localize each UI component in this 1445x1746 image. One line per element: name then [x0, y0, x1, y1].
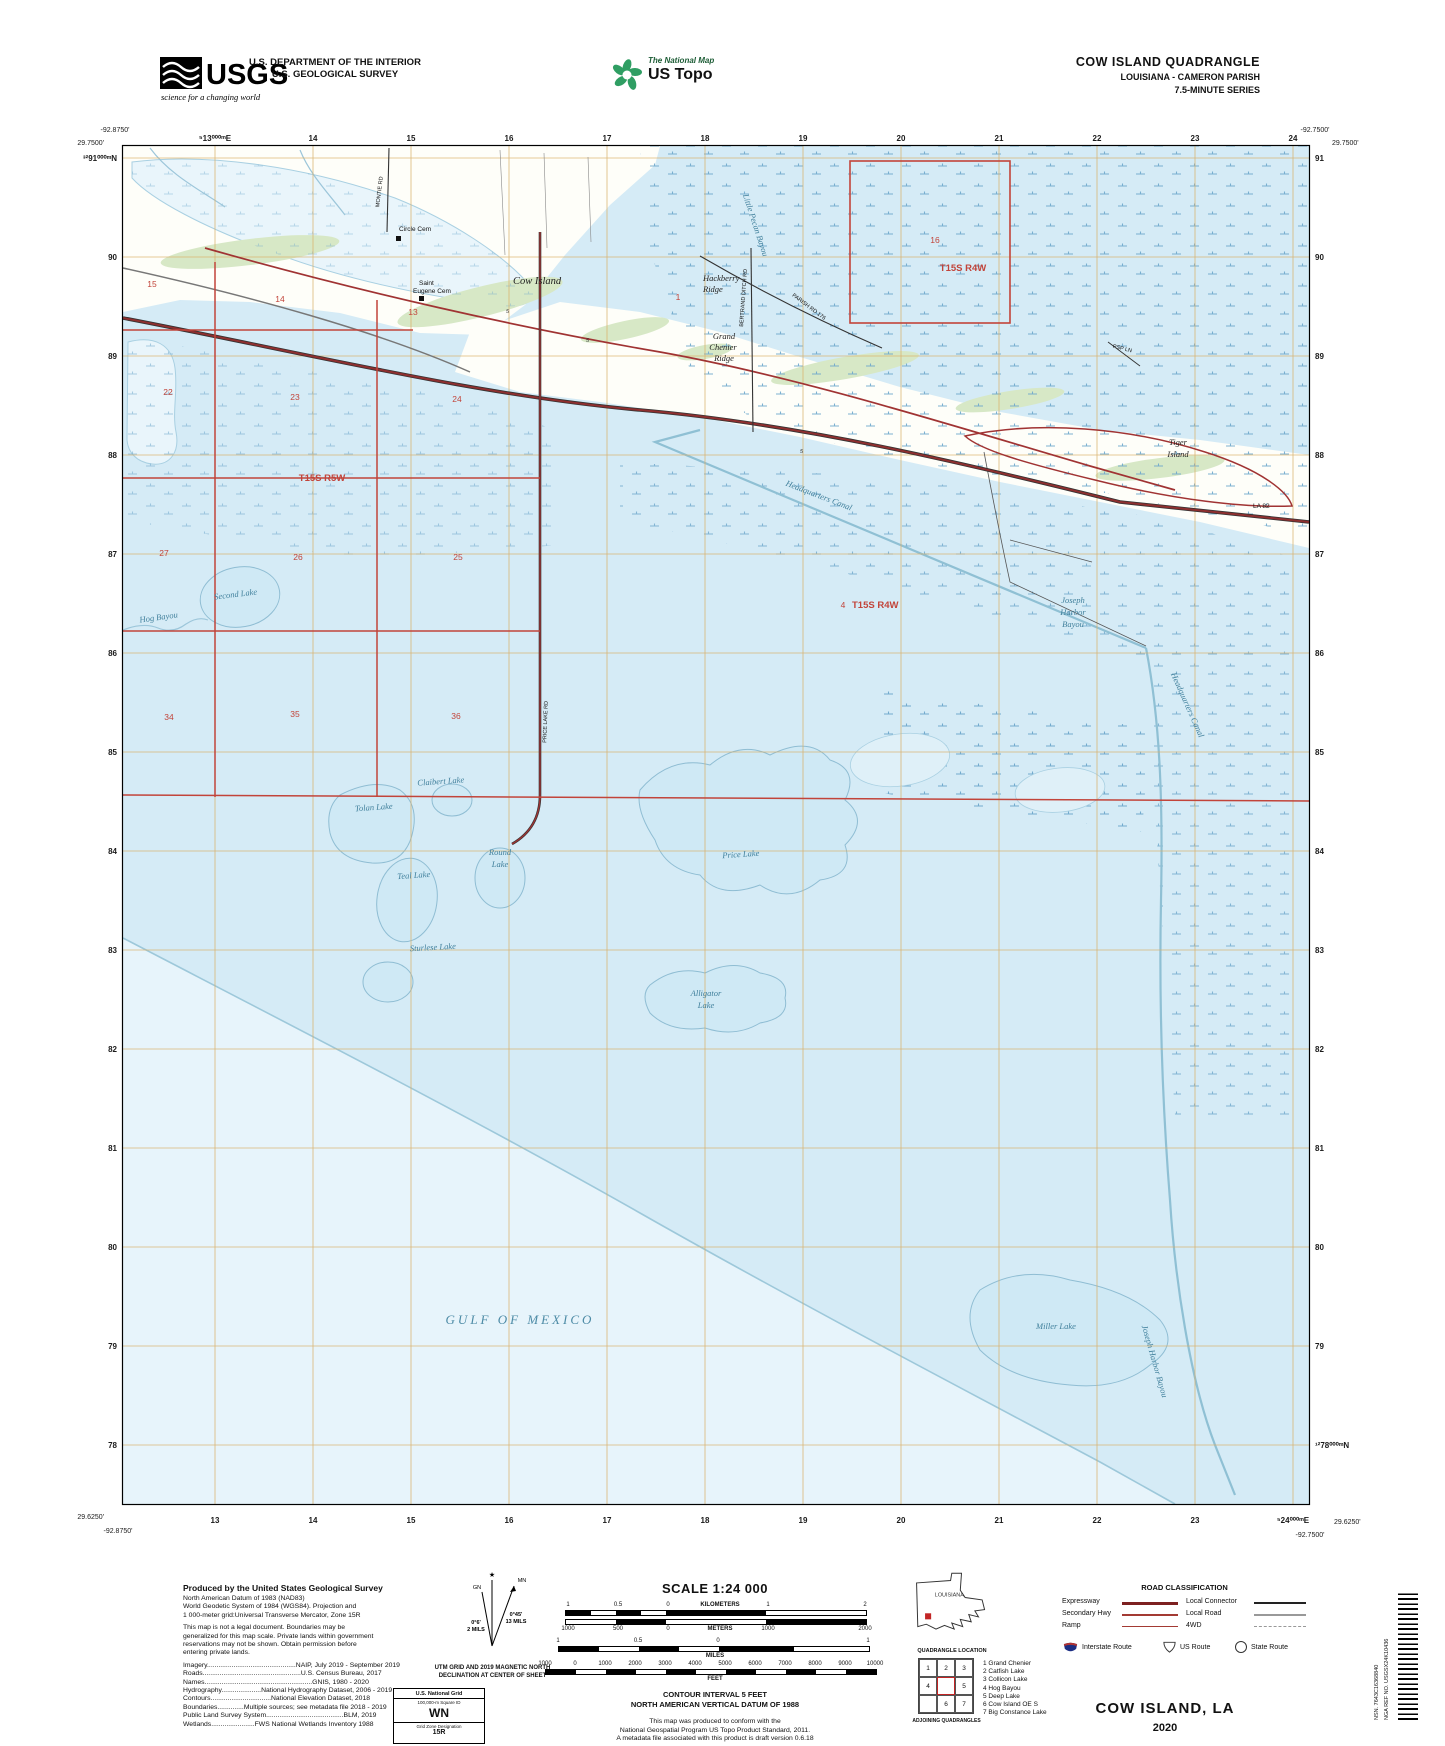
grid-label-left: 89: [108, 352, 117, 361]
road-classification: ROAD CLASSIFICATION Expressway Local Con…: [1062, 1583, 1307, 1656]
gn-angle: 0°6': [471, 1620, 481, 1626]
grid-label-bottom: 18: [701, 1516, 710, 1525]
grid-label-left: 85: [108, 748, 117, 757]
scale-block: SCALE 1:24 000 1 0.5 0 KILOMETERS 1 2 10…: [545, 1581, 885, 1744]
corner-coord: -92.8750': [101, 127, 130, 134]
scale-tick: 0: [666, 1602, 669, 1608]
ramp-line: [1122, 1626, 1178, 1627]
map-year: 2020: [1020, 1722, 1310, 1734]
scale-tick: 1000: [538, 1661, 551, 1667]
section-number: 36: [451, 711, 461, 721]
grid-label-left: 87: [108, 550, 117, 559]
bayou-label: Harbor: [1059, 607, 1086, 617]
louisiana-outline: LOUISIANA: [913, 1572, 993, 1640]
mn-angle: 0°45': [510, 1612, 523, 1618]
section-number: 34: [164, 712, 174, 722]
adjoining-cell-this-quad: [937, 1677, 955, 1695]
adjoining-cell: 1: [919, 1659, 937, 1677]
standard-line: National Geospatial Program US Topo Prod…: [545, 1727, 885, 1736]
grid-label-top: ⁵13⁰⁰⁰ᵐE: [199, 134, 232, 143]
scale-tick: 1000: [761, 1626, 774, 1632]
grid-label-top: 17: [603, 134, 612, 143]
scale-tick: 0: [573, 1661, 576, 1667]
nsn-number: NSN. 7643C16368840: [1374, 1592, 1380, 1720]
mi-scalebar: [558, 1646, 870, 1652]
corner-coord: -92.7500': [1301, 127, 1330, 134]
grid-label-top: 20: [897, 134, 906, 143]
adjoining-cell: 7: [955, 1695, 973, 1713]
grid-label-top: 15: [407, 134, 416, 143]
usng-gzd-label: Grid Zone Designation: [394, 1722, 484, 1729]
section-number: 14: [275, 294, 285, 304]
grid-label-left: 78: [108, 1441, 117, 1450]
ridge-label: Ridge: [713, 353, 734, 363]
grid-label-top: 14: [309, 134, 318, 143]
ridge-label: Ridge: [702, 284, 723, 294]
grid-label-right: 84: [1315, 847, 1324, 856]
township-label: T15S R4W: [852, 600, 898, 611]
grid-label-left: 84: [108, 847, 117, 856]
scale-tick: 9000: [838, 1661, 851, 1667]
cemetery-label: Saint: [419, 280, 434, 287]
gulf-of-mexico-label: GULF OF MEXICO: [446, 1312, 595, 1327]
grid-label-right: 86: [1315, 649, 1324, 658]
standard-line: A metadata file associated with this pro…: [545, 1735, 885, 1744]
scale-tick: 7000: [778, 1661, 791, 1667]
grid-label-right: 87: [1315, 550, 1324, 559]
scale-tick: 2000: [858, 1626, 871, 1632]
road-class-title: ROAD CLASSIFICATION: [1062, 1583, 1307, 1592]
grid-label-top: 24: [1289, 134, 1298, 143]
bayou-label: Joseph: [1061, 595, 1085, 605]
scale-tick: 0.5: [634, 1638, 642, 1644]
local-connector-line: [1254, 1602, 1306, 1604]
grid-label-left: 88: [108, 451, 117, 460]
lake-label: Alligator: [690, 988, 722, 998]
state-name: LOUISIANA: [935, 1592, 964, 1598]
road-class-label: Ramp: [1062, 1622, 1081, 1629]
km-labels: 1 0.5 0 KILOMETERS 1 2: [545, 1602, 885, 1610]
island-label: Island: [1166, 449, 1189, 459]
ft-labels: 1000 0 1000 2000 3000 4000 5000 6000 700…: [545, 1661, 885, 1669]
grid-label-bottom: 17: [603, 1516, 612, 1525]
grid-label-right: 88: [1315, 451, 1324, 460]
scale-tick: 0: [716, 1638, 719, 1644]
scale-tick: 1000: [598, 1661, 611, 1667]
usng-square-id: WN: [394, 1706, 484, 1720]
scale-tick: 2000: [628, 1661, 641, 1667]
adjoining-cell: 5: [955, 1677, 973, 1695]
adjoining-name: 3 Collicon Lake: [983, 1676, 1047, 1684]
corner-coord: 29.7500': [1332, 140, 1359, 147]
grid-label-top: 19: [799, 134, 808, 143]
corner-coord: -92.7500': [1296, 1532, 1325, 1539]
adjoining-caption: ADJOINING QUADRANGLES: [884, 1718, 1009, 1724]
grid-label-right: 89: [1315, 352, 1324, 361]
section-number: 23: [290, 392, 300, 402]
magnetic-north-label: MN: [518, 1578, 527, 1584]
grid-label-bottom: ⁵24⁰⁰⁰ᵐE: [1277, 1516, 1310, 1525]
local-road-line: [1254, 1614, 1306, 1616]
scale-tick: 8000: [808, 1661, 821, 1667]
scale-tick: 0: [666, 1626, 669, 1632]
ridge-label: Grand: [713, 331, 736, 341]
grid-label-right: 80: [1315, 1243, 1324, 1252]
road-class-label: Secondary Hwy: [1062, 1610, 1111, 1617]
scale-tick: 0.5: [614, 1602, 622, 1608]
grid-north-label: GN: [473, 1585, 481, 1591]
section-number: 15: [147, 279, 157, 289]
m-labels: 1000 500 0 METERS 1000 2000: [545, 1626, 885, 1634]
scale-tick: 1: [556, 1638, 559, 1644]
scale-tick: 1000: [561, 1626, 574, 1632]
scale-title: SCALE 1:24 000: [545, 1581, 885, 1596]
nga-ref-number: NGA REF NO. USGSX24K10436: [1384, 1592, 1390, 1720]
grid-label-left: 90: [108, 253, 117, 262]
secondary-hwy-line: [1122, 1614, 1178, 1616]
grid-label-bottom: 19: [799, 1516, 808, 1525]
vertical-datum: NORTH AMERICAN VERTICAL DATUM OF 1988: [545, 1700, 885, 1710]
scale-tick: 4000: [688, 1661, 701, 1667]
adjoining-name: 4 Hog Bayou: [983, 1685, 1047, 1693]
grid-label-left: 79: [108, 1342, 117, 1351]
grid-label-bottom: 23: [1191, 1516, 1200, 1525]
quadrangle-location: LOUISIANA: [898, 1572, 1008, 1645]
adjoining-cell: 2: [937, 1659, 955, 1677]
feet-unit: FEET: [545, 1676, 885, 1682]
road-class-label: Local Connector: [1186, 1598, 1237, 1605]
grid-label-right: 81: [1315, 1144, 1324, 1153]
state-route-circle-icon: [1234, 1640, 1248, 1654]
grid-label-right: 79: [1315, 1342, 1324, 1351]
grid-label-left: 82: [108, 1045, 117, 1054]
grid-label-left: 86: [108, 649, 117, 658]
scale-unit: KILOMETERS: [700, 1602, 739, 1608]
ft-scalebar: [545, 1669, 877, 1675]
scale-unit: METERS: [707, 1626, 732, 1632]
saint-eugene-cem-building: [419, 296, 424, 301]
grid-label-right: 91: [1315, 154, 1324, 163]
road-class-label: Local Road: [1186, 1610, 1221, 1617]
mn-mils: 13 MILS: [506, 1619, 527, 1625]
island-label: Tiger: [1169, 437, 1188, 447]
usng-subtitle: 100,000-m Square ID: [394, 1700, 484, 1705]
contour-interval: CONTOUR INTERVAL 5 FEET: [545, 1690, 885, 1700]
adjoining-cell: 6: [937, 1695, 955, 1713]
adjoining-cell: 3: [955, 1659, 973, 1677]
usgs-topo-sheet: USGS science for a changing world U.S. D…: [0, 0, 1445, 1746]
declination-diagram: ★ GN MN 0°6' 2 MILS 0°45' 13 MILS: [430, 1566, 560, 1661]
adjoining-cell: 4: [919, 1677, 937, 1695]
corner-coord: 29.7500': [77, 140, 104, 147]
adjoining-quadrangles-grid: 1 2 3 4 5 6 7: [918, 1658, 974, 1714]
grid-label-top: 18: [701, 134, 710, 143]
road-class-label: Expressway: [1062, 1598, 1100, 1605]
corner-coord: -92.8750': [104, 1528, 133, 1535]
grid-label-bottom: 14: [309, 1516, 318, 1525]
scale-tick: 5000: [718, 1661, 731, 1667]
true-north-star-icon: ★: [489, 1571, 495, 1579]
section-number: 27: [159, 548, 169, 558]
m-scalebar: [565, 1619, 867, 1625]
shield-label: US Route: [1180, 1644, 1210, 1651]
section-number: 26: [293, 552, 303, 562]
shield-label: Interstate Route: [1082, 1644, 1132, 1651]
usng-title: U.S. National Grid: [394, 1691, 484, 1699]
grid-label-top: 22: [1093, 134, 1102, 143]
section-number: 4: [841, 600, 846, 610]
barcode: [1398, 1592, 1418, 1720]
scale-tick: 1: [766, 1602, 769, 1608]
section-number: 24: [452, 394, 462, 404]
grid-label-bottom: 22: [1093, 1516, 1102, 1525]
grid-label-left: 83: [108, 946, 117, 955]
grid-label-right: 83: [1315, 946, 1324, 955]
cemetery-label: Eugene Cem: [413, 288, 451, 295]
grid-label-bottom: 21: [995, 1516, 1004, 1525]
grid-label-left: 80: [108, 1243, 117, 1252]
section-number: 35: [290, 709, 300, 719]
map-area: -92.8750' 29.7500' -92.7500' 29.7500' 29…: [0, 0, 1445, 1555]
route-label: LA 82: [1253, 503, 1270, 510]
grid-label-top: 21: [995, 134, 1004, 143]
us-route-shield-icon: [1162, 1640, 1177, 1654]
lake-label: Lake: [697, 1000, 715, 1010]
quadrangle-location-caption: QUADRANGLE LOCATION: [887, 1648, 1017, 1654]
grid-label-right: 85: [1315, 748, 1324, 757]
km-scalebar: [565, 1610, 867, 1616]
adjoining-name: 1 Grand Chenier: [983, 1660, 1047, 1668]
ridge-label: Chenier: [709, 342, 737, 352]
lake-label: Miller Lake: [1035, 1321, 1076, 1331]
corner-coord: 29.6250': [1334, 1519, 1361, 1526]
scale-tick: 6000: [748, 1661, 761, 1667]
scale-tick: 1: [566, 1602, 569, 1608]
miles-unit: MILES: [545, 1653, 885, 1659]
map-name: COW ISLAND, LA: [1020, 1700, 1310, 1717]
grid-label-right: 90: [1315, 253, 1324, 262]
section-number: 1: [676, 292, 681, 302]
4wd-line: [1254, 1626, 1306, 1627]
lake-label: Round: [488, 847, 512, 857]
grid-label-bottom: 15: [407, 1516, 416, 1525]
grid-label-top: 23: [1191, 134, 1200, 143]
bayou-label: Bayou: [1062, 619, 1084, 629]
grid-label-bottom: 13: [211, 1516, 220, 1525]
usng-gzd: 15R: [394, 1729, 484, 1736]
scale-tick: 10000: [867, 1661, 884, 1667]
scale-tick: 1: [866, 1638, 869, 1644]
scale-tick: 500: [613, 1626, 623, 1632]
grid-label-left: ³²91⁰⁰⁰ᵐN: [83, 154, 117, 163]
gn-mils: 2 MILS: [467, 1627, 485, 1633]
quad-location-marker: [925, 1613, 931, 1619]
adjoining-cell: [919, 1695, 937, 1713]
ridge-label: Cow Island: [513, 276, 562, 287]
section-number: 13: [408, 307, 418, 317]
adjoining-name: 2 Catfish Lake: [983, 1668, 1047, 1676]
grid-label-right: 82: [1315, 1045, 1324, 1054]
section-number: 22: [163, 387, 173, 397]
usng-box: U.S. National Grid 100,000-m Square ID W…: [393, 1688, 485, 1744]
township-label: T15S R4W: [940, 263, 986, 274]
cemetery-label: Circle Cem: [399, 226, 431, 233]
grid-label-bottom: 20: [897, 1516, 906, 1525]
section-number: 16: [930, 235, 940, 245]
map-name-block: COW ISLAND, LA 2020: [1020, 1700, 1310, 1734]
mi-labels: 1 0.5 0 1: [545, 1638, 885, 1646]
road-class-label: 4WD: [1186, 1622, 1202, 1629]
section-number: 25: [453, 552, 463, 562]
township-label: T15S R5W: [299, 473, 345, 484]
lake-label: Lake: [491, 859, 509, 869]
circle-cem-building: [396, 236, 401, 241]
corner-coord: 29.6250': [77, 1514, 104, 1521]
grid-label-left: 81: [108, 1144, 117, 1153]
grid-label-top: 16: [505, 134, 514, 143]
interstate-shield-icon: [1062, 1640, 1079, 1654]
ridge-label: Hackberry: [702, 273, 740, 283]
scale-tick: 3000: [658, 1661, 671, 1667]
shield-label: State Route: [1251, 1644, 1288, 1651]
expressway-line: [1122, 1602, 1178, 1605]
grid-label-right: ¹²78⁰⁰⁰ᵐN: [1315, 1441, 1349, 1450]
grid-label-bottom: 16: [505, 1516, 514, 1525]
scale-tick: 2: [863, 1602, 866, 1608]
standard-line: This map was produced to conform with th…: [545, 1718, 885, 1727]
